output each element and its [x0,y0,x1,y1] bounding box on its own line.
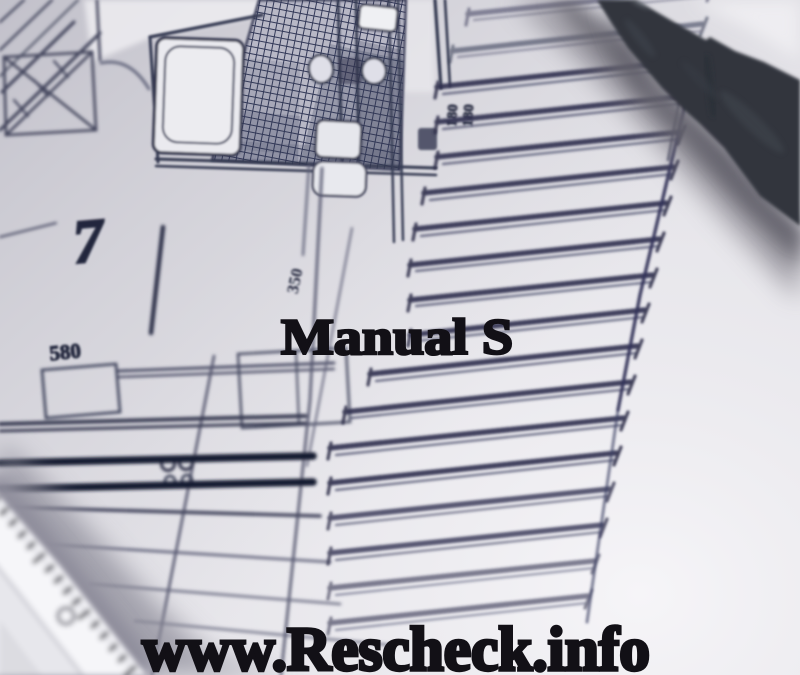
svg-text:www.Rescheck.info: www.Rescheck.info [142,616,650,675]
svg-text:580: 580 [48,338,82,365]
svg-text:Manual S: Manual S [281,310,513,366]
svg-text:180: 180 [444,104,462,128]
